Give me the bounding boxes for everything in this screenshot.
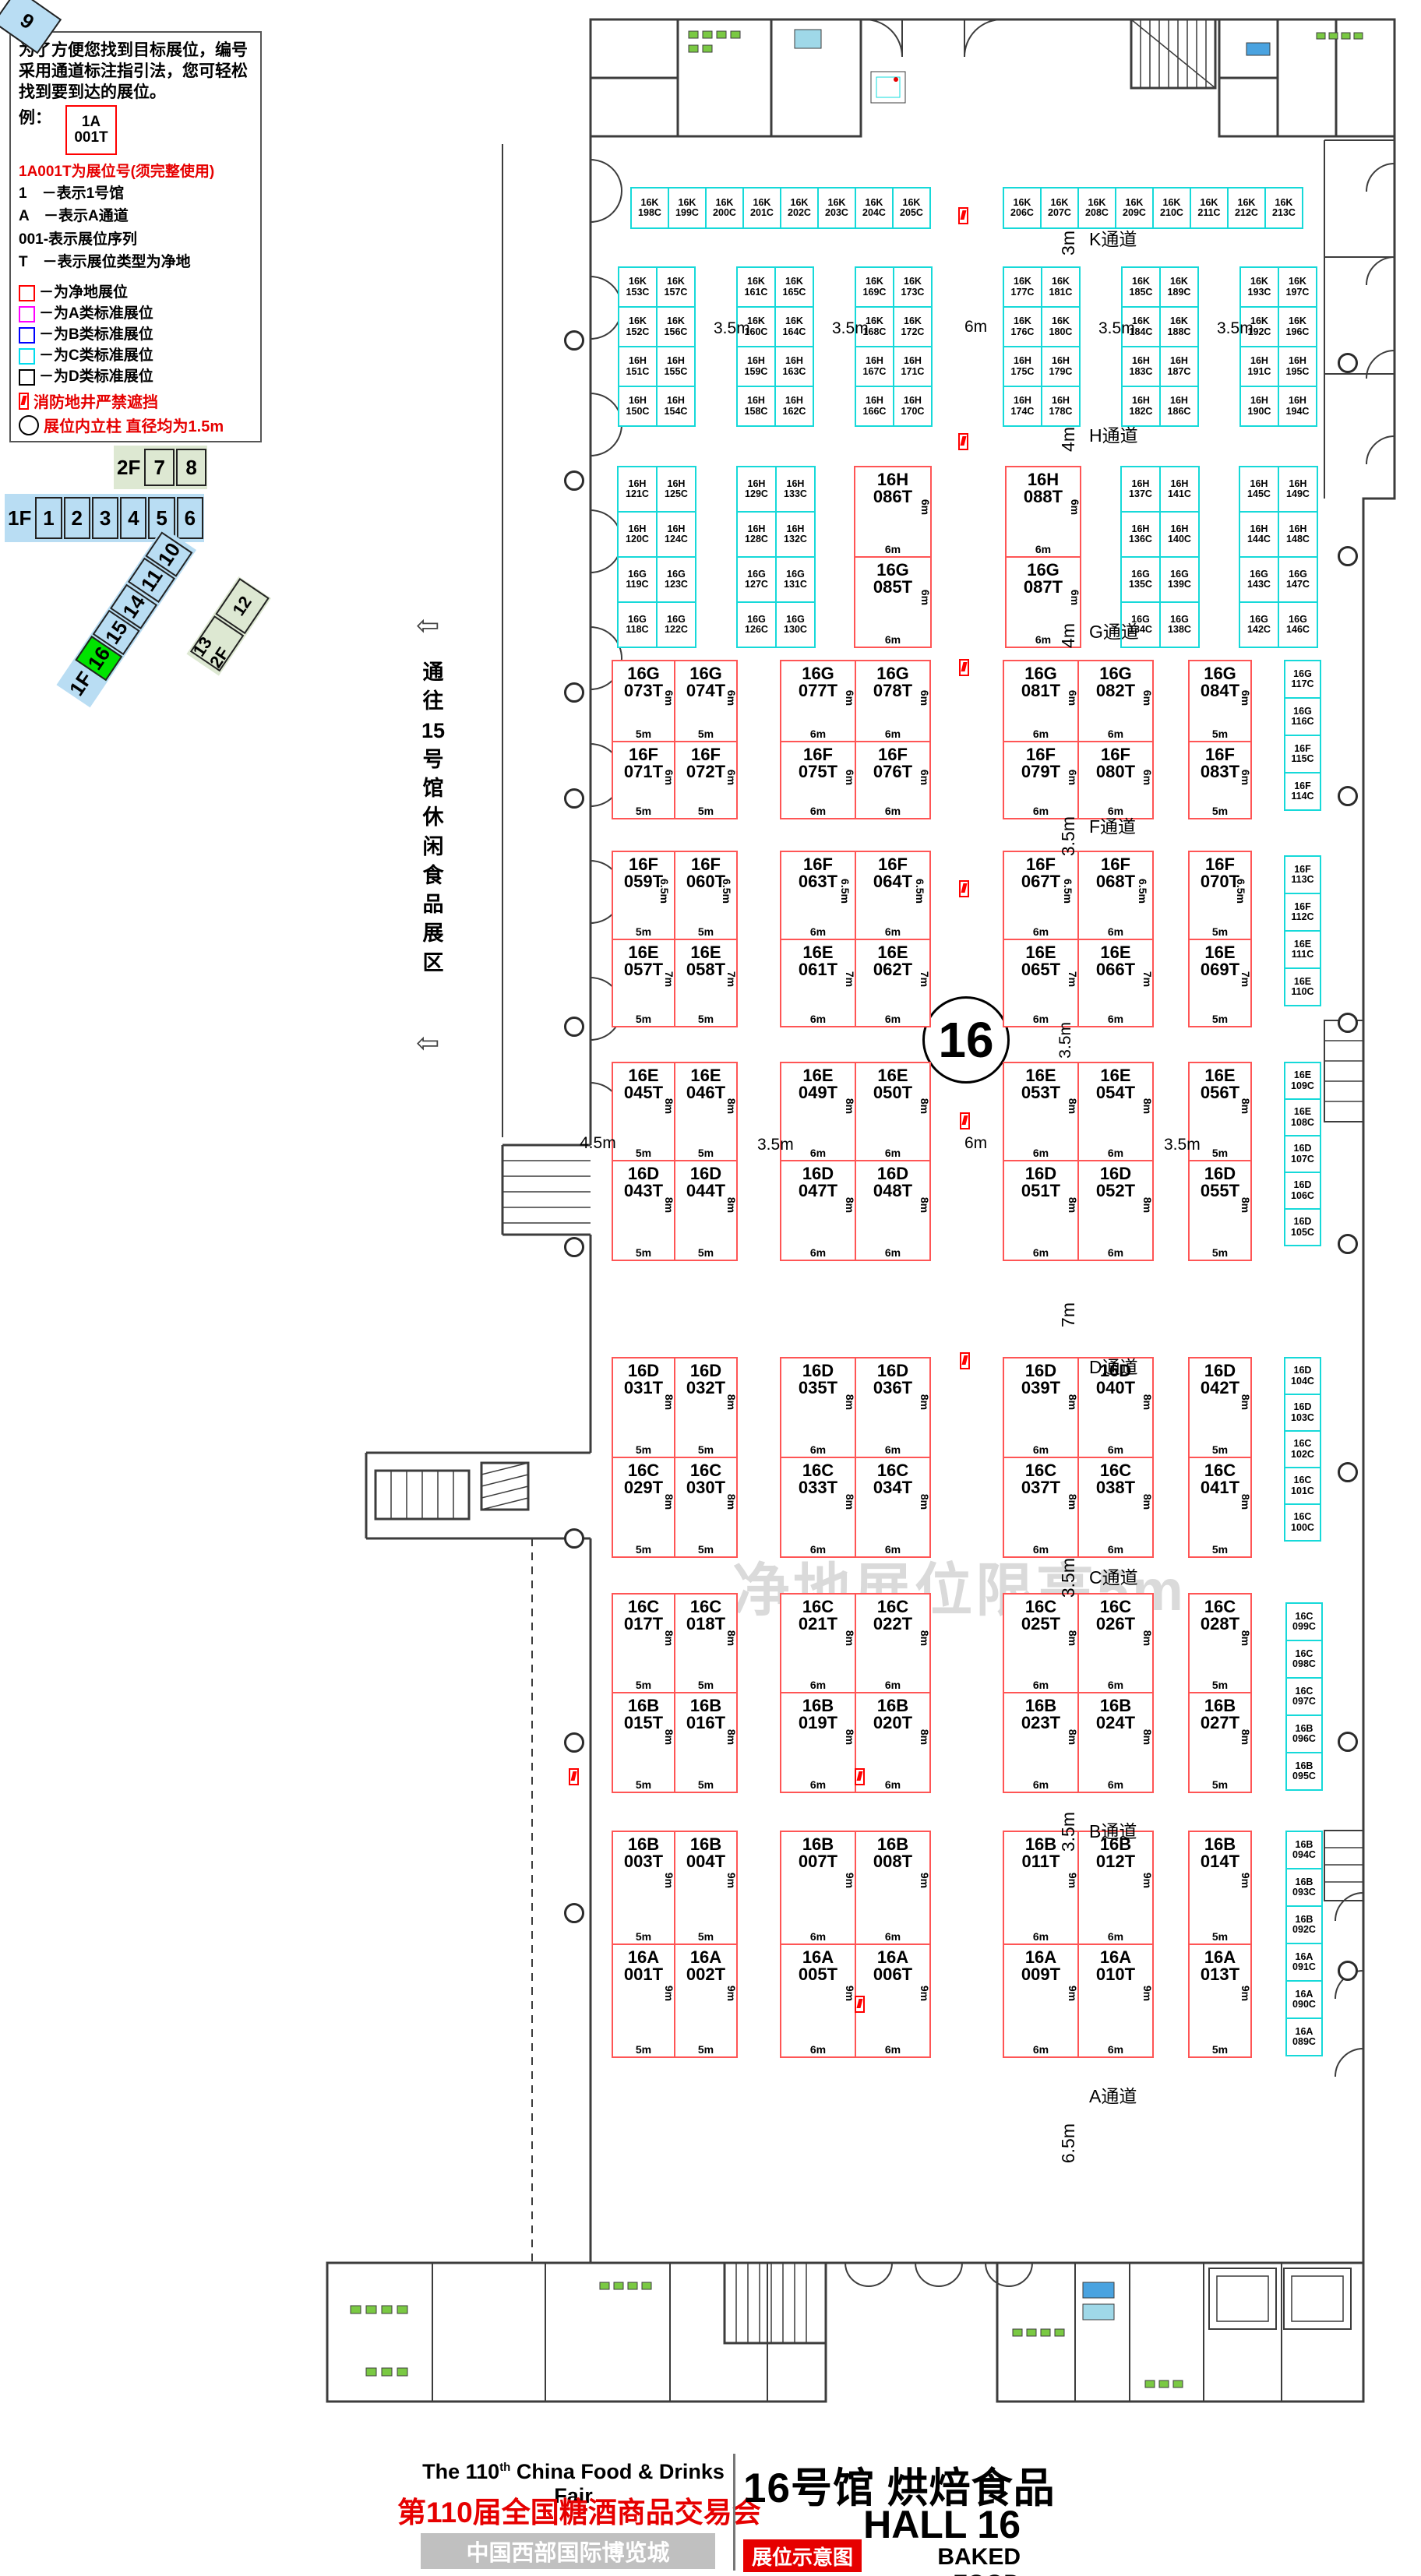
- booth-clear-16F-075T: 16F075T6m6m: [780, 741, 856, 819]
- corridor-to-hall15-label: 通 往 15 号 馆 休 闲 食 品 展 区: [419, 658, 447, 978]
- minimap-hall-8: 8: [176, 449, 206, 486]
- legend-type-label: －为B类标准展位: [39, 325, 153, 346]
- booth-clear-16F-076T: 16F076T6m6m: [855, 741, 931, 819]
- booth-cell-16K-198C: 16K198C: [630, 187, 669, 229]
- booth-cell-16K-164C: 16K164C: [774, 306, 814, 347]
- booth-cell-16H-195C: 16H195C: [1278, 346, 1317, 387]
- booth-cell-16K-204C: 16K204C: [855, 187, 894, 229]
- dimension-label: 3.5m: [1217, 319, 1254, 338]
- booth-cell-16C-101C: 16C101C: [1284, 1467, 1321, 1505]
- booth-clear-16E-065T: 16E065T7m6m: [1003, 939, 1079, 1027]
- booth-clear-16B-007T: 16B007T9m6m: [780, 1831, 856, 1945]
- dimension-label: 6m: [964, 318, 987, 337]
- dimension-label: 6m: [964, 1134, 987, 1153]
- booth-clear-16G-084T: 16G084T6m5m: [1188, 660, 1252, 742]
- legend-type-item: －为B类标准展位: [19, 325, 254, 346]
- booth-cell-16K-161C: 16K161C: [736, 266, 776, 308]
- booth-clear-16E-057T: 16E057T7m5m: [612, 939, 675, 1027]
- booth-cell-16C-098C: 16C098C: [1285, 1640, 1323, 1679]
- booth-clear-16E-054T: 16E054T8m6m: [1077, 1062, 1154, 1161]
- legend-code-line: A －表示A通道: [19, 205, 254, 227]
- booth-clear-16G-074T: 16G074T6m5m: [674, 660, 738, 742]
- aisle-name-C通道: C通道: [1089, 1563, 1138, 1589]
- aisle-width-label: 4m: [1058, 427, 1079, 452]
- pillar-icon: [564, 330, 584, 351]
- minimap-hall-2: 2: [64, 497, 90, 539]
- booth-cell-16K-177C: 16K177C: [1003, 266, 1042, 308]
- booth-cell-16H-171C: 16H171C: [893, 346, 933, 387]
- booth-cell-16H-191C: 16H191C: [1239, 346, 1279, 387]
- booth-cell-16B-095C: 16B095C: [1285, 1752, 1323, 1791]
- booth-cell-16H-190C: 16H190C: [1239, 386, 1279, 427]
- minimap-hall-4: 4: [120, 497, 146, 539]
- minimap-floor2-label: 2F: [117, 456, 140, 480]
- booth-cell-16E-111C: 16E111C: [1284, 930, 1321, 969]
- booth-clear-16B-016T: 16B016T8m5m: [674, 1692, 738, 1793]
- booth-cell-16K-209C: 16K209C: [1115, 187, 1154, 229]
- booth-cell-16E-110C: 16E110C: [1284, 967, 1321, 1006]
- pillar-icon: [564, 788, 584, 809]
- booth-cell-16H-145C: 16H145C: [1239, 466, 1279, 513]
- booth-clear-16E-050T: 16E050T8m6m: [855, 1062, 931, 1161]
- booth-clear-16A-005T: 16A005T9m6m: [780, 1943, 856, 2058]
- arrow-left-icon: ⇦: [416, 609, 439, 642]
- legend-type-item: －为净地展位: [19, 283, 254, 304]
- booth-clear-16F-063T: 16F063T6.5m6m: [780, 851, 856, 940]
- pillar-icon: [1338, 1234, 1358, 1254]
- booth-cell-16G-147C: 16G147C: [1278, 556, 1318, 603]
- legend-code-line: T －表示展位类型为净地: [19, 251, 254, 273]
- booth-cell-16F-114C: 16F114C: [1284, 772, 1321, 811]
- legend-type-item: －为C类标准展位: [19, 346, 254, 367]
- booth-clear-16E-069T: 16E069T7m5m: [1188, 939, 1252, 1027]
- booth-cell-16B-092C: 16B092C: [1285, 1905, 1323, 1944]
- booth-cell-16H-140C: 16H140C: [1159, 511, 1200, 558]
- dimension-label: 3.5m: [1056, 1022, 1075, 1059]
- booth-cell-16G-138C: 16G138C: [1159, 601, 1200, 648]
- booth-clear-16C-041T: 16C041T8m5m: [1188, 1457, 1252, 1558]
- booth-clear-16C-034T: 16C034T8m6m: [855, 1457, 931, 1558]
- booth-clear-16C-038T: 16C038T8m6m: [1077, 1457, 1154, 1558]
- booth-clear-16A-002T: 16A002T9m5m: [674, 1943, 738, 2058]
- booth-clear-16G-078T: 16G078T6m6m: [855, 660, 931, 742]
- booth-cell-16H-155C: 16H155C: [656, 346, 696, 387]
- booth-clear-16D-048T: 16D048T8m6m: [855, 1160, 931, 1261]
- dimension-label: 4.5m: [580, 1134, 616, 1153]
- booth-clear-16B-015T: 16B015T8m5m: [612, 1692, 675, 1793]
- booth-clear-16G-085T: 16G085T6m6m: [854, 556, 932, 648]
- booth-clear-16C-037T: 16C037T8m6m: [1003, 1457, 1079, 1558]
- booth-clear-16B-024T: 16B024T8m6m: [1077, 1692, 1154, 1793]
- booth-cell-16D-105C: 16D105C: [1284, 1208, 1321, 1246]
- booth-clear-16F-060T: 16F060T6.5m5m: [674, 851, 738, 940]
- booth-clear-16F-068T: 16F068T6.5m6m: [1077, 851, 1154, 940]
- booth-cell-16K-211C: 16K211C: [1190, 187, 1229, 229]
- booth-type-swatch: [19, 327, 35, 344]
- booth-cell-16K-207C: 16K207C: [1040, 187, 1079, 229]
- booth-cell-16K-165C: 16K165C: [774, 266, 814, 308]
- legend-code-line: 001-表示展位序列: [19, 228, 254, 251]
- booth-cell-16K-169C: 16K169C: [855, 266, 894, 308]
- booth-cell-16K-199C: 16K199C: [668, 187, 707, 229]
- booth-cell-16H-167C: 16H167C: [855, 346, 894, 387]
- title-block: The 110th China Food & Drinks Fair 第110届…: [374, 2446, 1028, 2576]
- dimension-label: 3.5m: [757, 1136, 794, 1154]
- booth-cell-16K-173C: 16K173C: [893, 266, 933, 308]
- booth-type-swatch: [19, 285, 35, 301]
- booth-clear-16A-001T: 16A001T9m5m: [612, 1943, 675, 2058]
- booth-clear-16B-027T: 16B027T8m5m: [1188, 1692, 1252, 1793]
- booth-type-swatch: [19, 306, 35, 322]
- legend-code-lines: 1 －表示1号馆A －表示A通道001-表示展位序列T －表示展位类型为净地: [19, 182, 254, 274]
- legend-type-label: －为净地展位: [39, 283, 128, 304]
- fire-well-icon: [958, 207, 968, 224]
- fire-well-icon: [959, 880, 969, 897]
- arrow-left-icon: ⇦: [416, 1027, 439, 1059]
- booth-cell-16D-104C: 16D104C: [1284, 1357, 1321, 1395]
- booth-cell-16H-136C: 16H136C: [1120, 511, 1161, 558]
- booth-clear-16D-042T: 16D042T8m5m: [1188, 1357, 1252, 1458]
- pillar-icon: [19, 415, 39, 435]
- booth-clear-16H-088T: 16H088T6m6m: [1005, 466, 1081, 558]
- booth-cell-16H-121C: 16H121C: [617, 466, 658, 513]
- booth-cell-16B-094C: 16B094C: [1285, 1831, 1323, 1869]
- booth-clear-16G-081T: 16G081T6m6m: [1003, 660, 1079, 742]
- pillar-icon: [1338, 1961, 1358, 1981]
- booth-cell-16K-196C: 16K196C: [1278, 306, 1317, 347]
- minimap-hall-1: 1: [35, 497, 62, 539]
- booth-clear-16G-077T: 16G077T6m6m: [780, 660, 856, 742]
- booth-cell-16K-213C: 16K213C: [1264, 187, 1303, 229]
- booth-clear-16F-064T: 16F064T6.5m6m: [855, 851, 931, 940]
- legend-box: 为了方便您找到目标展位，编号采用通道标注指引法，您可轻松找到要到达的展位。 例：…: [9, 31, 262, 442]
- hall-number-circle: 16: [922, 996, 1010, 1084]
- booth-clear-16F-070T: 16F070T6.5m5m: [1188, 851, 1252, 940]
- booth-cell-16C-097C: 16C097C: [1285, 1677, 1323, 1716]
- booth-cell-16F-113C: 16F113C: [1284, 855, 1321, 894]
- legend-fire-note: 消防地井严禁遮挡: [19, 389, 254, 412]
- booth-clear-16D-052T: 16D052T8m6m: [1077, 1160, 1154, 1261]
- legend-type-label: －为D类标准展位: [39, 367, 153, 388]
- booth-clear-16A-010T: 16A010T9m6m: [1077, 1943, 1154, 2058]
- booth-cell-16H-159C: 16H159C: [736, 346, 776, 387]
- booth-cell-16C-100C: 16C100C: [1284, 1503, 1321, 1542]
- booth-clear-16C-029T: 16C029T8m5m: [612, 1457, 675, 1558]
- booth-cell-16G-123C: 16G123C: [656, 556, 696, 603]
- booth-clear-16D-044T: 16D044T8m5m: [674, 1160, 738, 1261]
- aisle-name-H通道: H通道: [1089, 421, 1138, 447]
- aisle-name-K通道: K通道: [1089, 224, 1137, 251]
- booth-cell-16K-193C: 16K193C: [1239, 266, 1279, 308]
- booth-cell-16H-183C: 16H183C: [1121, 346, 1161, 387]
- booth-cell-16A-090C: 16A090C: [1285, 1980, 1323, 2019]
- legend-pillar-note: 展位内立柱 直径均为1.5m: [19, 414, 254, 436]
- aisle-name-A通道: A通道: [1089, 2081, 1137, 2108]
- booth-cell-16H-124C: 16H124C: [656, 511, 696, 558]
- booth-cell-16A-089C: 16A089C: [1285, 2017, 1323, 2056]
- pillar-icon: [564, 470, 584, 491]
- legend-type-item: －为A类标准展位: [19, 304, 254, 325]
- aisle-width-label: 3m: [1058, 231, 1079, 255]
- dimension-label: 3.5m: [1164, 1136, 1201, 1154]
- pillar-icon: [1338, 546, 1358, 566]
- booth-clear-16G-073T: 16G073T6m5m: [612, 660, 675, 742]
- booth-cell-16K-210C: 16K210C: [1152, 187, 1191, 229]
- booth-cell-16G-146C: 16G146C: [1278, 601, 1318, 648]
- legend-example-booth: 1A001T: [65, 105, 117, 155]
- minimap-floor2-strip: 2F78: [114, 446, 207, 489]
- booth-clear-16C-030T: 16C030T8m5m: [674, 1457, 738, 1558]
- booth-clear-16D-035T: 16D035T8m6m: [780, 1357, 856, 1458]
- booth-cell-16H-129C: 16H129C: [736, 466, 777, 513]
- booth-cell-16G-117C: 16G117C: [1284, 660, 1321, 699]
- booth-cell-16H-128C: 16H128C: [736, 511, 777, 558]
- booth-clear-16E-053T: 16E053T8m6m: [1003, 1062, 1079, 1161]
- venue-bar: 中国西部国际博览城: [421, 2533, 715, 2569]
- booth-clear-16A-009T: 16A009T9m6m: [1003, 1943, 1079, 2058]
- minimap-hall-6: 6: [177, 497, 203, 539]
- booth-cell-16G-130C: 16G130C: [775, 601, 816, 648]
- booth-cell-16H-162C: 16H162C: [774, 386, 814, 427]
- booth-clear-16C-025T: 16C025T8m6m: [1003, 1593, 1079, 1693]
- aisle-name-F通道: F通道: [1089, 812, 1136, 838]
- booth-cell-16K-153C: 16K153C: [618, 266, 658, 308]
- fire-well-icon: [959, 659, 969, 676]
- booth-clear-16B-003T: 16B003T9m5m: [612, 1831, 675, 1945]
- booth-cell-16G-131C: 16G131C: [775, 556, 816, 603]
- booth-cell-16K-176C: 16K176C: [1003, 306, 1042, 347]
- legend-type-label: －为A类标准展位: [39, 304, 153, 325]
- booth-cell-16H-144C: 16H144C: [1239, 511, 1279, 558]
- booth-cell-16G-119C: 16G119C: [617, 556, 658, 603]
- aisle-width-label: 3.5m: [1058, 1812, 1079, 1852]
- aisle-name-D通道: D通道: [1089, 1352, 1138, 1379]
- booth-cell-16B-093C: 16B093C: [1285, 1868, 1323, 1907]
- booth-cell-16K-181C: 16K181C: [1041, 266, 1081, 308]
- booth-cell-16D-103C: 16D103C: [1284, 1394, 1321, 1432]
- booth-clear-16D-039T: 16D039T8m6m: [1003, 1357, 1079, 1458]
- booth-cell-16K-156C: 16K156C: [656, 306, 696, 347]
- fire-well-icon: [19, 393, 29, 410]
- booth-cell-16H-194C: 16H194C: [1278, 386, 1317, 427]
- booth-cell-16K-152C: 16K152C: [618, 306, 658, 347]
- legend-intro: 为了方便您找到目标展位，编号采用通道标注指引法，您可轻松找到要到达的展位。: [19, 41, 254, 104]
- booth-cell-16H-174C: 16H174C: [1003, 386, 1042, 427]
- booth-clear-16F-059T: 16F059T6.5m5m: [612, 851, 675, 940]
- fire-well-icon: [960, 1352, 970, 1369]
- booth-cell-16H-175C: 16H175C: [1003, 346, 1042, 387]
- booth-cell-16G-135C: 16G135C: [1120, 556, 1161, 603]
- booth-cell-16H-151C: 16H151C: [618, 346, 658, 387]
- booth-clear-16B-020T: 16B020T8m6m: [855, 1692, 931, 1793]
- fire-well-icon: [569, 1768, 579, 1785]
- aisle-width-label: 3.5m: [1058, 816, 1079, 856]
- booth-cell-16C-102C: 16C102C: [1284, 1430, 1321, 1468]
- legend-booth-number-note: 1A001T为展位号(须完整使用): [19, 160, 254, 181]
- booth-clear-16D-032T: 16D032T8m5m: [674, 1357, 738, 1458]
- fair-title-cn: 第110届全国糖酒商品交易会: [397, 2489, 748, 2531]
- booth-cell-16K-208C: 16K208C: [1077, 187, 1116, 229]
- pillar-icon: [564, 1017, 584, 1037]
- booth-cell-16H-148C: 16H148C: [1278, 511, 1318, 558]
- legend-example-label: 例：: [19, 105, 51, 129]
- booth-cell-16H-158C: 16H158C: [736, 386, 776, 427]
- booth-clear-16G-082T: 16G082T6m6m: [1077, 660, 1154, 742]
- pillar-icon: [1338, 786, 1358, 806]
- booth-clear-16C-017T: 16C017T8m5m: [612, 1593, 675, 1693]
- booth-clear-16F-083T: 16F083T6m5m: [1188, 741, 1252, 819]
- dimension-label: 3.5m: [714, 319, 750, 338]
- booth-cell-16H-150C: 16H150C: [618, 386, 658, 427]
- title-divider: [733, 2454, 735, 2571]
- booth-cell-16H-141C: 16H141C: [1159, 466, 1200, 513]
- booth-clear-16B-014T: 16B014T9m5m: [1188, 1831, 1252, 1945]
- booth-clear-16C-021T: 16C021T8m6m: [780, 1593, 856, 1693]
- fire-well-icon: [855, 1768, 865, 1785]
- booth-cell-16G-143C: 16G143C: [1239, 556, 1279, 603]
- booth-type-swatch: [19, 348, 35, 365]
- pillar-icon: [1338, 353, 1358, 373]
- aisle-width-label: 6.5m: [1058, 2123, 1079, 2163]
- booth-cell-16G-116C: 16G116C: [1284, 697, 1321, 736]
- booth-cell-16K-203C: 16K203C: [817, 187, 856, 229]
- pillar-icon: [1338, 1732, 1358, 1752]
- booth-clear-16B-012T: 16B012T9m6m: [1077, 1831, 1154, 1945]
- booth-cell-16H-125C: 16H125C: [656, 466, 696, 513]
- booth-cell-16H-163C: 16H163C: [774, 346, 814, 387]
- booth-clear-16F-072T: 16F072T6m5m: [674, 741, 738, 819]
- booth-clear-16D-036T: 16D036T8m6m: [855, 1357, 931, 1458]
- dimension-label: 3.5m: [832, 319, 869, 338]
- booth-cell-16F-115C: 16F115C: [1284, 735, 1321, 774]
- booth-cell-16D-107C: 16D107C: [1284, 1135, 1321, 1173]
- booth-cell-16K-157C: 16K157C: [656, 266, 696, 308]
- map-badge: 展位示意图: [743, 2539, 862, 2572]
- booth-clear-16A-006T: 16A006T9m6m: [855, 1943, 931, 2058]
- booth-cell-16H-187C: 16H187C: [1159, 346, 1199, 387]
- booth-cell-16G-142C: 16G142C: [1239, 601, 1279, 648]
- booth-cell-16K-201C: 16K201C: [742, 187, 781, 229]
- pillar-icon: [564, 1528, 584, 1549]
- booth-cell-16H-154C: 16H154C: [656, 386, 696, 427]
- booth-clear-16D-031T: 16D031T8m5m: [612, 1357, 675, 1458]
- booth-cell-16K-200C: 16K200C: [705, 187, 744, 229]
- dimension-label: 3.5m: [1098, 319, 1135, 338]
- legend-code-line: 1 －表示1号馆: [19, 182, 254, 205]
- booth-cell-16E-109C: 16E109C: [1284, 1062, 1321, 1100]
- booth-cell-16G-127C: 16G127C: [736, 556, 777, 603]
- booth-clear-16B-008T: 16B008T9m6m: [855, 1831, 931, 1945]
- booth-cell-16K-189C: 16K189C: [1159, 266, 1199, 308]
- booth-clear-16F-067T: 16F067T6.5m6m: [1003, 851, 1079, 940]
- booth-clear-16C-026T: 16C026T8m6m: [1077, 1593, 1154, 1693]
- booth-clear-16C-033T: 16C033T8m6m: [780, 1457, 856, 1558]
- booth-clear-16E-058T: 16E058T7m5m: [674, 939, 738, 1027]
- pillar-icon: [564, 682, 584, 703]
- minimap-floor1-label: 1F: [8, 506, 31, 530]
- fire-well-icon: [958, 433, 968, 450]
- booth-cell-16H-178C: 16H178C: [1041, 386, 1081, 427]
- booth-cell-16D-106C: 16D106C: [1284, 1172, 1321, 1210]
- booth-clear-16C-028T: 16C028T8m5m: [1188, 1593, 1252, 1693]
- fire-well-icon: [960, 1112, 970, 1129]
- booth-cell-16H-120C: 16H120C: [617, 511, 658, 558]
- booth-cell-16H-179C: 16H179C: [1041, 346, 1081, 387]
- booth-clear-16H-086T: 16H086T6m6m: [854, 466, 932, 558]
- booth-type-swatch: [19, 369, 35, 386]
- pillar-icon: [564, 1237, 584, 1257]
- pillar-icon: [1338, 1462, 1358, 1482]
- booth-clear-16C-018T: 16C018T8m5m: [674, 1593, 738, 1693]
- pillar-icon: [564, 1732, 584, 1753]
- pillar-icon: [1338, 1013, 1358, 1033]
- aisle-name-B通道: B通道: [1089, 1817, 1137, 1843]
- booth-cell-16G-139C: 16G139C: [1159, 556, 1200, 603]
- booth-clear-16B-019T: 16B019T8m6m: [780, 1692, 856, 1793]
- booth-clear-16D-043T: 16D043T8m5m: [612, 1160, 675, 1261]
- booth-cell-16H-149C: 16H149C: [1278, 466, 1318, 513]
- booth-cell-16H-186C: 16H186C: [1159, 386, 1199, 427]
- booth-cell-16G-118C: 16G118C: [617, 601, 658, 648]
- booth-cell-16K-188C: 16K188C: [1159, 306, 1199, 347]
- booth-cell-16B-096C: 16B096C: [1285, 1714, 1323, 1753]
- booth-clear-16F-080T: 16F080T6m6m: [1077, 741, 1154, 819]
- booth-cell-16K-185C: 16K185C: [1121, 266, 1161, 308]
- booth-cell-16H-170C: 16H170C: [893, 386, 933, 427]
- booth-cell-16G-122C: 16G122C: [656, 601, 696, 648]
- booth-cell-16K-172C: 16K172C: [893, 306, 933, 347]
- booth-cell-16C-099C: 16C099C: [1285, 1602, 1323, 1641]
- legend-type-items: －为净地展位－为A类标准展位－为B类标准展位－为C类标准展位－为D类标准展位: [19, 283, 254, 388]
- fire-well-icon: [855, 1996, 865, 2013]
- booth-cell-16H-133C: 16H133C: [775, 466, 816, 513]
- category-en: BAKED FOOD: [869, 2544, 1021, 2576]
- booth-cell-16K-202C: 16K202C: [780, 187, 819, 229]
- booth-clear-16E-046T: 16E046T8m5m: [674, 1062, 738, 1161]
- booth-cell-16E-108C: 16E108C: [1284, 1098, 1321, 1136]
- pillar-icon: [564, 1903, 584, 1923]
- booth-cell-16K-212C: 16K212C: [1227, 187, 1266, 229]
- booth-cell-16G-126C: 16G126C: [736, 601, 777, 648]
- legend-type-item: －为D类标准展位: [19, 367, 254, 388]
- booth-clear-16E-061T: 16E061T7m6m: [780, 939, 856, 1027]
- aisle-name-G通道: G通道: [1089, 617, 1139, 643]
- minimap-hall-7: 7: [144, 449, 175, 486]
- booth-clear-16F-079T: 16F079T6m6m: [1003, 741, 1079, 819]
- booth-cell-16K-205C: 16K205C: [892, 187, 931, 229]
- booth-clear-16E-066T: 16E066T7m6m: [1077, 939, 1154, 1027]
- booth-clear-16B-004T: 16B004T9m5m: [674, 1831, 738, 1945]
- booth-clear-16B-023T: 16B023T8m6m: [1003, 1692, 1079, 1793]
- booth-clear-16A-013T: 16A013T9m5m: [1188, 1943, 1252, 2058]
- booth-clear-16D-055T: 16D055T8m5m: [1188, 1160, 1252, 1261]
- booth-cell-16A-091C: 16A091C: [1285, 1943, 1323, 1982]
- floorplan-canvas: 为了方便您找到目标展位，编号采用通道标注指引法，您可轻松找到要到达的展位。 例：…: [0, 0, 1421, 2576]
- booth-clear-16F-071T: 16F071T6m5m: [612, 741, 675, 819]
- booth-cell-16H-132C: 16H132C: [775, 511, 816, 558]
- booth-cell-16H-166C: 16H166C: [855, 386, 894, 427]
- booth-clear-16C-022T: 16C022T8m6m: [855, 1593, 931, 1693]
- booth-clear-16D-047T: 16D047T8m6m: [780, 1160, 856, 1261]
- booth-cell-16F-112C: 16F112C: [1284, 893, 1321, 932]
- minimap-hall-3: 3: [92, 497, 118, 539]
- booth-cell-16H-137C: 16H137C: [1120, 466, 1161, 513]
- booth-cell-16K-180C: 16K180C: [1041, 306, 1081, 347]
- booth-clear-16E-045T: 16E045T8m5m: [612, 1062, 675, 1161]
- booth-clear-16E-062T: 16E062T7m6m: [855, 939, 931, 1027]
- aisle-width-label: 7m: [1058, 1302, 1079, 1327]
- booth-clear-16D-051T: 16D051T8m6m: [1003, 1160, 1079, 1261]
